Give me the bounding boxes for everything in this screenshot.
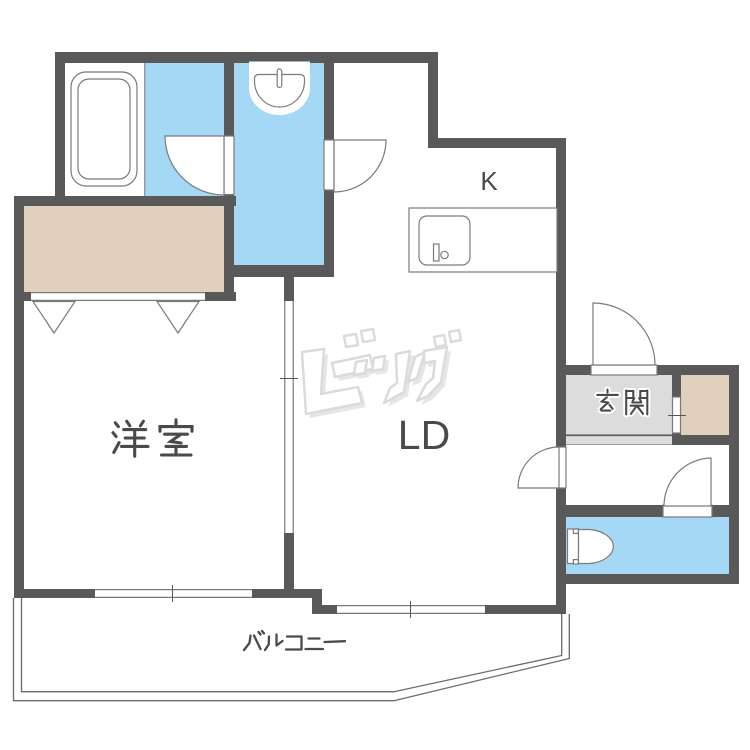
svg-text:K: K <box>480 166 498 196</box>
svg-text:LD: LD <box>398 412 450 458</box>
